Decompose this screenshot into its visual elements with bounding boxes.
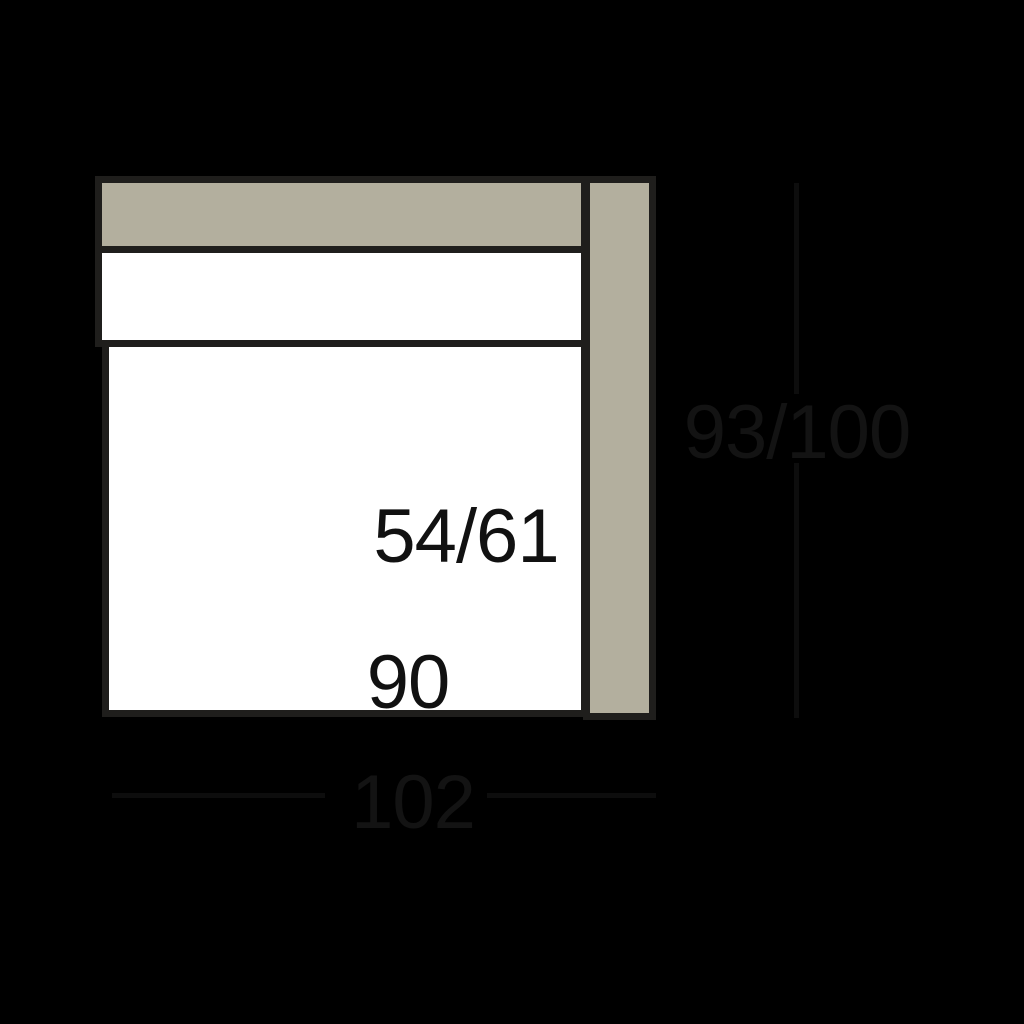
sofa-module-top-view-schematic: 54/61 90 93/100 102: [0, 0, 1024, 1024]
overall-width-label: 102: [351, 760, 475, 845]
back-cushion-strip: [99, 250, 585, 344]
backrest-strip: [99, 180, 585, 250]
furniture-dimension-diagram: 54/61 90 93/100 102: [0, 0, 1024, 1024]
armrest-right: [587, 180, 653, 717]
overall-depth-label: 93/100: [684, 390, 910, 475]
seat-depth-label: 54/61: [373, 494, 558, 579]
seat-width-label: 90: [367, 640, 450, 725]
